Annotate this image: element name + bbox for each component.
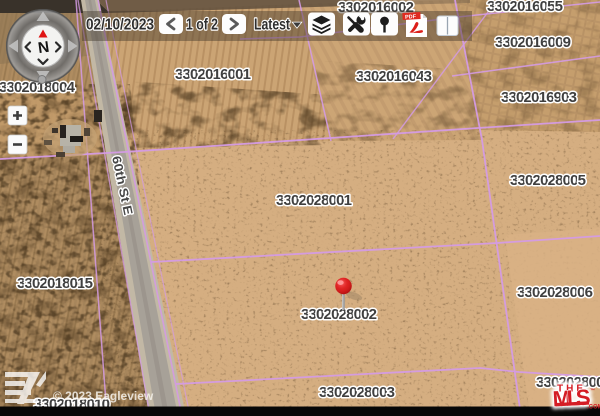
- svg-text:PDF: PDF: [405, 14, 417, 21]
- svg-text:3302028006: 3302028006: [517, 284, 593, 301]
- svg-text:3302016055: 3302016055: [487, 0, 563, 15]
- svg-text:3302028003: 3302028003: [319, 384, 395, 401]
- svg-text:3302016001: 3302016001: [175, 66, 251, 83]
- svg-text:© 2023 Eagleview: © 2023 Eagleview: [53, 389, 154, 403]
- svg-text:N: N: [37, 39, 50, 57]
- svg-text:3302028002: 3302028002: [301, 306, 377, 323]
- svg-text:3302016009: 3302016009: [495, 34, 571, 51]
- svg-text:3302028001: 3302028001: [276, 192, 352, 209]
- svg-text:3302018015: 3302018015: [17, 275, 93, 292]
- svg-text:1 of 2: 1 of 2: [186, 17, 218, 34]
- svg-text:.COM: .COM: [587, 405, 600, 411]
- svg-text:Latest: Latest: [254, 17, 290, 34]
- svg-text:3302028005: 3302028005: [510, 172, 586, 189]
- svg-text:3302016043: 3302016043: [356, 68, 432, 85]
- svg-text:™: ™: [590, 388, 595, 394]
- svg-text:3302016903: 3302016903: [501, 89, 577, 106]
- svg-text:MLS: MLS: [552, 385, 591, 412]
- svg-text:02/10/2023: 02/10/2023: [86, 17, 154, 34]
